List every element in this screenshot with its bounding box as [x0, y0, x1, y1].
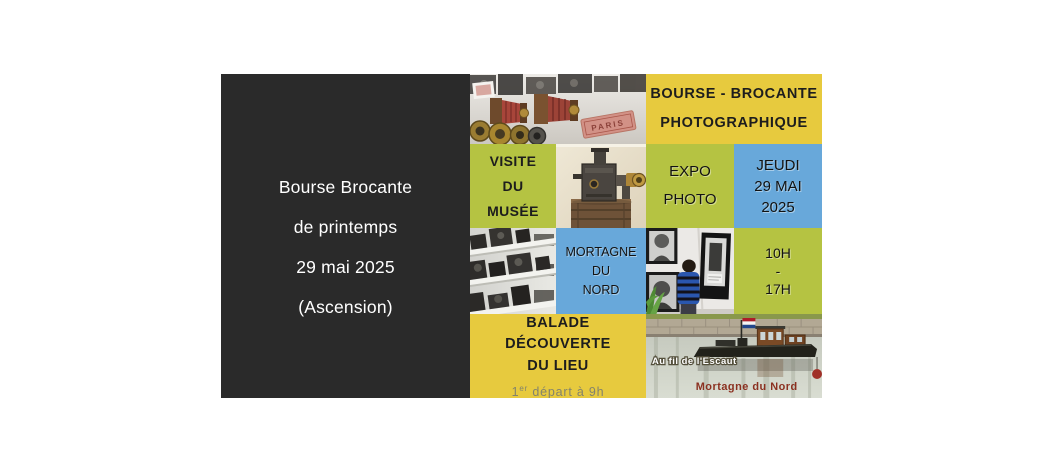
date-cell: JEUDI 29 MAI 2025	[734, 144, 822, 228]
expo-line-1: EXPO	[669, 158, 711, 186]
balade-line-2: DÉCOUVERTE	[505, 334, 611, 356]
title-line-2: PHOTOGRAPHIQUE	[660, 109, 808, 138]
projector-photo-art	[556, 144, 646, 228]
visite-line-1: VISITE	[490, 149, 537, 174]
caption-river: Au fil de l'Escaut	[652, 356, 737, 367]
location-line-1: MORTAGNE	[565, 243, 636, 262]
balade-departure-sup: er	[519, 384, 528, 393]
location-line-3: NORD	[583, 281, 620, 300]
balade-line-1: BALADE	[526, 314, 589, 334]
title-line-1: BOURSE - BROCANTE	[650, 80, 817, 109]
cameras-photo-art: PARIS	[470, 74, 646, 144]
expo-photo-cell: EXPO PHOTO	[646, 144, 734, 228]
poster-grid: PARIS BOURSE - BROCANTE PHOTOGRAPHIQUE V…	[470, 74, 822, 398]
gallery-photo	[646, 228, 734, 314]
event-title: Bourse Brocante	[279, 178, 412, 196]
date-line-3: 2025	[761, 197, 794, 218]
event-date: 29 mai 2025	[296, 258, 395, 276]
left-panel: Bourse Brocante de printemps 29 mai 2025…	[221, 74, 470, 398]
balade-departure: 1er départ à 9h	[512, 384, 605, 398]
date-line-2: 29 MAI	[754, 176, 802, 197]
balade-departure-rest: départ à 9h	[528, 385, 604, 398]
visite-line-2: DU	[502, 174, 523, 199]
balade-cell: BALADE DÉCOUVERTE DU LIEU 1er départ à 9…	[470, 314, 646, 398]
hours-cell: 10H - 17H	[734, 228, 822, 314]
visite-line-3: MUSÉE	[487, 199, 539, 224]
event-poster: Bourse Brocante de printemps 29 mai 2025…	[221, 74, 822, 398]
event-season: de printemps	[294, 218, 398, 236]
boat-photo: Au fil de l'Escaut Mortagne du Nord	[646, 314, 822, 398]
caption-town: Mortagne du Nord	[696, 381, 798, 393]
location-line-2: DU	[592, 262, 610, 281]
location-cell: MORTAGNE DU NORD	[556, 228, 646, 314]
hours-open: 10H	[765, 244, 791, 262]
projector-photo	[556, 144, 646, 228]
gallery-photo-art	[646, 228, 734, 314]
balade-line-3: DU LIEU	[527, 356, 589, 378]
date-line-1: JEUDI	[756, 155, 799, 176]
hours-close: 17H	[765, 280, 791, 298]
visite-musee-cell: VISITE DU MUSÉE	[470, 144, 556, 228]
title-cell: BOURSE - BROCANTE PHOTOGRAPHIQUE	[646, 74, 822, 144]
boat-photo-art: Au fil de l'Escaut Mortagne du Nord	[646, 314, 822, 398]
museum-shelves-photo-art	[470, 228, 556, 314]
hours-dash: -	[776, 262, 781, 280]
event-holiday: (Ascension)	[298, 298, 393, 316]
cameras-photo: PARIS	[470, 74, 646, 144]
museum-shelves-photo	[470, 228, 556, 314]
expo-line-2: PHOTO	[663, 186, 716, 214]
